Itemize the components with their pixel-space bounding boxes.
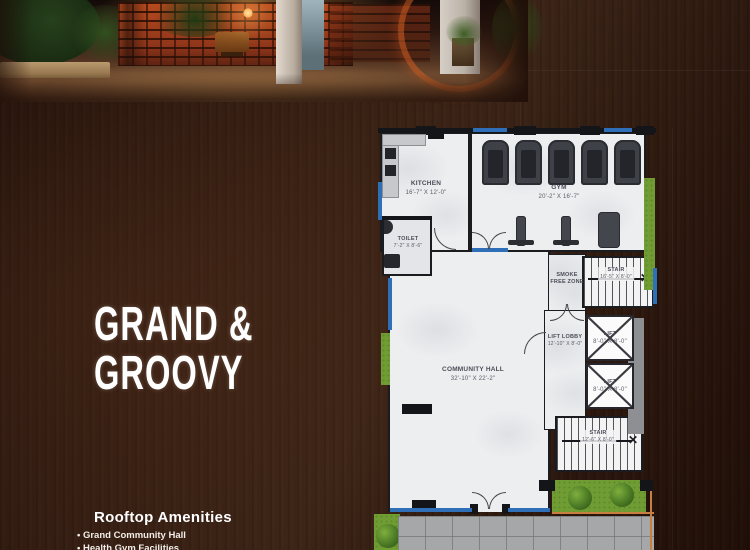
accent-blue-top [473, 128, 507, 132]
tile-seam [672, 128, 673, 550]
bush [610, 483, 634, 507]
photo-fade-overlay [0, 0, 528, 102]
lawn-left-strip [381, 333, 390, 385]
bush [568, 486, 592, 510]
smoke-free-zone-label: SMOKE FREE ZONE [550, 272, 583, 287]
rooftop-floor-plan: ✕ ✕ LIFT8'-0" X 8'-0" LIFT8'-0" X 8'-0" [376, 128, 660, 550]
treadmill [614, 140, 641, 185]
wall-pier-hall [402, 404, 432, 414]
terrace-paving [398, 516, 654, 550]
deck-edge-line [552, 512, 654, 514]
amenities-list: Grand Community Hall Health Gym Faciliti… [77, 529, 186, 550]
kitchen-hood [428, 130, 444, 139]
lift-2: LIFT8'-0" X 8'-0" [586, 363, 634, 409]
stair-bottom-label: STAIR 12'-6" X 8'-0" [580, 430, 616, 444]
treadmill [482, 140, 509, 185]
treadmill [515, 140, 542, 185]
amenity-item: Health Gym Facilities [77, 542, 186, 550]
wall-column-terrace [640, 480, 653, 491]
accent-blue-top-2 [604, 128, 632, 132]
lift-lobby-label: LIFT LOBBY 12'-10" X 8'-0" [548, 334, 583, 348]
rooftop-night-photo [0, 0, 528, 102]
accent-blue-right [653, 268, 657, 304]
brochure-page: GRAND & GROOVY Rooftop Amenities Grand C… [0, 0, 750, 550]
bush [376, 524, 400, 548]
lift-2-label: LIFT8'-0" X 8'-0" [593, 379, 627, 395]
wall-column [514, 126, 536, 135]
accent-blue-hall-bottom-left [390, 508, 472, 512]
amenity-item: Grand Community Hall [77, 529, 186, 542]
dumbbell-bar [508, 240, 534, 245]
toilet-label: TOILET 7'-2" X 8'-6" [394, 236, 423, 250]
room-lift-lobby [544, 310, 586, 430]
accent-blue-left-hall [388, 278, 392, 330]
kitchen-label: KITCHEN 16'-7" X 12'-0" [406, 180, 447, 197]
wall-column [636, 126, 654, 135]
community-hall-label: COMMUNITY HALL 32'-10" X 22'-2" [442, 366, 504, 383]
treadmill [581, 140, 608, 185]
toilet-wall-top [382, 216, 432, 220]
lift-1: LIFT8'-0" X 8'-0" [586, 315, 634, 361]
gym-machine [598, 212, 620, 248]
stair-bottom-break-symbol: ✕ [628, 434, 638, 446]
headline-line2: GROOVY [94, 349, 253, 398]
kitchen-sink [385, 165, 396, 176]
stove-burner [385, 148, 396, 159]
tile-seam [520, 70, 750, 71]
headline-line1: GRAND & [94, 300, 253, 349]
gym-label: GYM 20'-2" X 16'-7" [539, 184, 580, 201]
kitchen-counter-top [382, 134, 426, 146]
headline: GRAND & GROOVY [94, 300, 253, 398]
toilet-sink [384, 254, 400, 268]
dumbbell-bar [553, 240, 579, 245]
accent-blue-hall-bottom-right [508, 508, 550, 512]
wall-column [580, 126, 600, 135]
amenities-title: Rooftop Amenities [94, 509, 232, 526]
lift-1-label: LIFT8'-0" X 8'-0" [593, 331, 627, 347]
stair-top-label: STAIR 16'-5" X 8'-0" [598, 267, 634, 281]
treadmill [548, 140, 575, 185]
wall-column-terrace [539, 480, 555, 491]
